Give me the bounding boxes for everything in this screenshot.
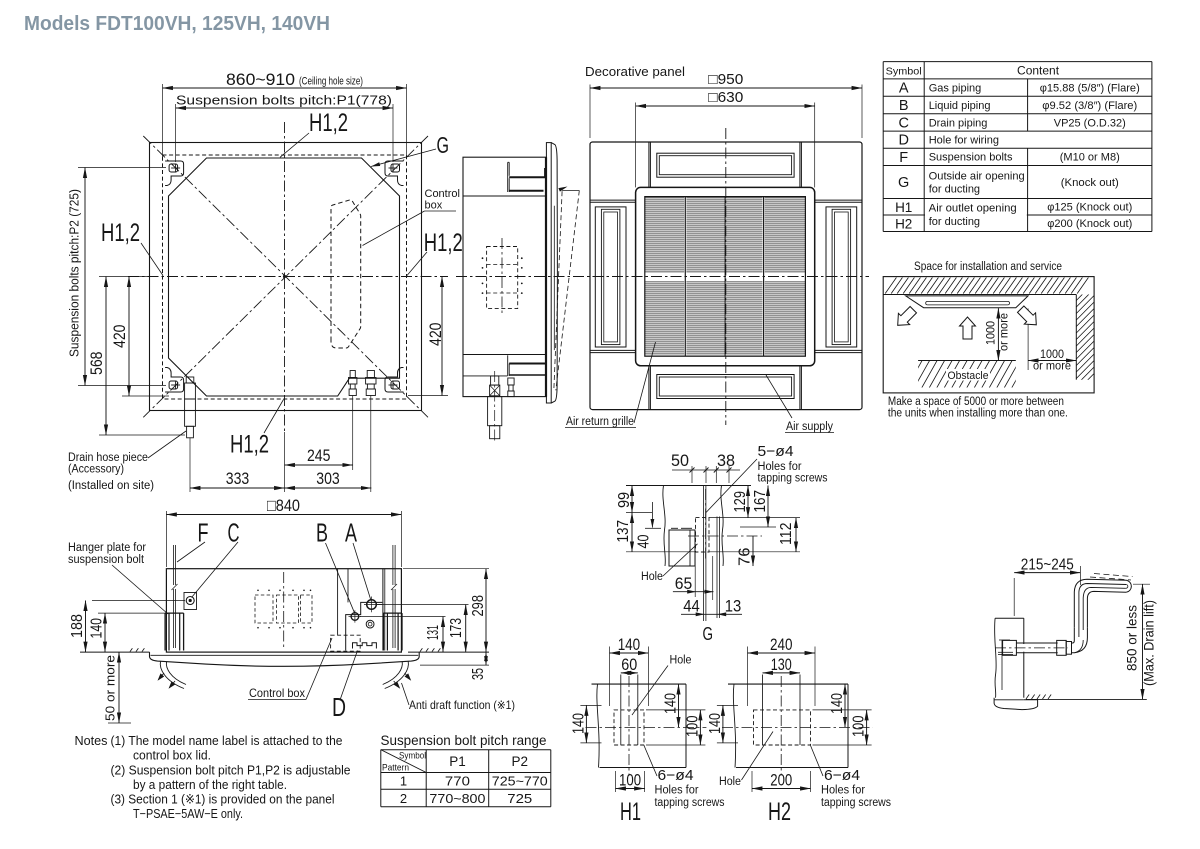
svg-text:Control box: Control box [249,686,305,700]
svg-text:850 or less: 850 or less [1125,605,1140,671]
svg-text:(Ceiling hole size): (Ceiling hole size) [299,76,363,88]
svg-text:φ200 (Knock out): φ200 (Knock out) [1047,218,1132,230]
svg-text:(2) Suspension bolt pitch P1,P: (2) Suspension bolt pitch P1,P2 is adjus… [111,763,351,778]
svg-text:129: 129 [732,491,749,513]
svg-text:(M10 or M8): (M10 or M8) [1060,152,1120,164]
svg-text:G: G [703,624,714,644]
svg-text:140: 140 [89,618,106,639]
svg-text:tapping screws: tapping screws [655,797,725,809]
svg-text:188: 188 [69,614,86,638]
svg-text:99: 99 [616,492,633,508]
svg-text:2: 2 [400,791,407,806]
svg-text:Holes for: Holes for [758,461,802,473]
svg-text:140: 140 [707,713,724,734]
svg-text:Suspension bolts: Suspension bolts [929,152,1013,164]
svg-text:box: box [425,200,443,212]
svg-text:Suspension bolt pitch range: Suspension bolt pitch range [381,733,547,748]
svg-text:65: 65 [675,574,693,593]
svg-text:P2: P2 [511,754,528,769]
svg-text:tapping screws: tapping screws [821,797,891,809]
svg-text:or more: or more [1033,361,1071,373]
svg-text:H1,2: H1,2 [101,219,140,247]
svg-text:568: 568 [87,352,106,376]
svg-text:H1: H1 [620,798,641,826]
svg-text:Control: Control [425,188,460,200]
svg-text:Notes: Notes [75,733,108,748]
svg-text:Holes for: Holes for [821,785,865,797]
svg-text:for ducting: for ducting [929,216,980,228]
svg-text:35: 35 [470,668,487,680]
svg-text:H1: H1 [895,200,912,215]
svg-text:333: 333 [226,469,250,488]
svg-text:□950: □950 [708,71,743,88]
svg-text:Symbol: Symbol [886,65,922,77]
svg-text:φ125 (Knock out): φ125 (Knock out) [1047,202,1132,214]
svg-text:6−ø4: 6−ø4 [658,767,694,784]
svg-text:Hole for wiring: Hole for wiring [929,134,999,146]
svg-text:Hole: Hole [670,655,692,667]
svg-text:200: 200 [770,771,792,790]
svg-text:Suspension bolts pitch:P1(778): Suspension bolts pitch:P1(778) [176,93,392,108]
svg-text:131: 131 [425,625,442,640]
svg-text:B: B [316,518,328,548]
svg-text:H1,2: H1,2 [230,431,269,459]
svg-text:Air outlet opening: Air outlet opening [929,203,1017,215]
svg-text:298: 298 [470,595,487,617]
svg-text:H1,2: H1,2 [424,229,463,257]
svg-text:Obstacle: Obstacle [948,370,989,382]
svg-text:Anti draft function (※1): Anti draft function (※1) [409,698,515,712]
svg-text:76: 76 [737,547,754,566]
svg-text:A: A [345,518,357,548]
svg-text:Space for installation and ser: Space for installation and service [914,261,1062,273]
svg-text:Hole: Hole [719,776,741,788]
svg-text:G: G [898,175,909,191]
svg-text:420: 420 [110,325,129,349]
svg-text:Content: Content [1017,65,1060,77]
svg-text:G: G [437,132,450,158]
svg-text:tapping screws: tapping screws [758,473,828,485]
svg-text:860~910: 860~910 [226,70,295,89]
svg-text:112: 112 [778,522,795,545]
svg-text:P1: P1 [449,754,466,769]
svg-text:VP25 (O.D.32): VP25 (O.D.32) [1054,117,1126,129]
svg-text:T−PSAE−5AW−E only.: T−PSAE−5AW−E only. [133,806,243,821]
svg-text:for ducting: for ducting [929,184,980,196]
svg-text:Symbol: Symbol [399,750,426,760]
svg-text:770~800: 770~800 [429,791,485,806]
svg-text:13: 13 [725,597,742,616]
svg-text:F: F [899,150,908,166]
svg-text:140: 140 [829,693,846,714]
svg-text:Suspension bolts pitch:P2 (725: Suspension bolts pitch:P2 (725) [68,189,82,357]
svg-text:725: 725 [507,791,532,806]
svg-text:38: 38 [717,451,735,470]
svg-text:140: 140 [618,635,641,654]
svg-text:(Installed on site): (Installed on site) [68,480,154,492]
svg-text:167: 167 [752,490,769,513]
svg-text:Air supply: Air supply [786,421,833,433]
svg-text:□630: □630 [708,89,743,106]
svg-text:420: 420 [426,323,445,347]
svg-text:1000: 1000 [1040,349,1064,361]
svg-text:(1) The model name label is at: (1) The model name label is attached to … [111,733,343,748]
svg-text:A: A [899,81,909,97]
svg-text:137: 137 [615,520,632,543]
svg-text:303: 303 [316,469,340,488]
svg-text:Drain piping: Drain piping [929,117,988,129]
svg-text:H2: H2 [768,798,791,826]
svg-text:φ15.88 (5/8″) (Flare): φ15.88 (5/8″) (Flare) [1040,82,1140,94]
svg-text:1: 1 [400,774,407,789]
svg-text:φ9.52 (3/8″) (Flare): φ9.52 (3/8″) (Flare) [1042,100,1137,112]
svg-text:725~770: 725~770 [492,774,548,789]
svg-text:C: C [228,518,240,548]
svg-text:D: D [898,133,908,149]
svg-text:(Knock out): (Knock out) [1061,177,1119,189]
svg-text:770: 770 [445,774,470,789]
svg-text:Pattern: Pattern [382,763,409,773]
svg-text:Gas piping: Gas piping [929,82,982,94]
svg-text:100: 100 [619,771,641,790]
svg-text:Decorative panel: Decorative panel [585,65,685,79]
svg-text:Hanger plate for: Hanger plate for [68,542,146,554]
svg-text:1000: 1000 [986,321,998,345]
svg-text:Holes for: Holes for [655,785,699,797]
svg-text:50 or more: 50 or more [104,655,118,721]
svg-text:5−ø4: 5−ø4 [758,443,794,460]
svg-text:H1,2: H1,2 [309,109,348,137]
svg-text:(Accessory): (Accessory) [68,464,124,476]
svg-text:50: 50 [671,451,689,470]
svg-text:60: 60 [621,655,637,674]
svg-text:Liquid piping: Liquid piping [929,100,991,112]
svg-text:Air return grille: Air return grille [566,416,634,428]
svg-text:D: D [332,692,346,722]
svg-text:140: 140 [570,713,587,734]
svg-text:C: C [898,115,908,131]
svg-text:100: 100 [851,715,868,737]
svg-text:or more: or more [999,313,1011,351]
svg-text:by a pattern of the right tabl: by a pattern of the right table. [133,777,287,792]
svg-text:215~245: 215~245 [1021,557,1074,574]
svg-text:140: 140 [663,693,680,714]
svg-text:6−ø4: 6−ø4 [824,767,860,784]
svg-text:the units when installing more: the units when installing more than one. [888,408,1068,420]
svg-text:Hole: Hole [641,571,663,583]
svg-text:130: 130 [771,655,792,674]
svg-text:Models FDT100VH, 125VH, 140VH: Models FDT100VH, 125VH, 140VH [24,13,330,35]
svg-text:44: 44 [683,597,700,616]
svg-text:(Max. Drain lift): (Max. Drain lift) [1142,600,1157,686]
svg-text:100: 100 [684,715,701,737]
svg-text:240: 240 [770,635,793,654]
svg-text:Outside air opening: Outside air opening [929,171,1025,183]
svg-text:245: 245 [307,446,331,465]
svg-text:Make a space of 5000 or more b: Make a space of 5000 or more between [888,396,1064,408]
svg-text:(3) Section 1 (※1) is provided: (3) Section 1 (※1) is provided on the pa… [111,792,335,807]
svg-text:□840: □840 [267,496,300,515]
svg-text:control box lid.: control box lid. [133,748,211,763]
svg-text:173: 173 [448,618,465,638]
svg-text:suspension bolt: suspension bolt [68,554,145,566]
svg-text:H2: H2 [895,216,912,231]
svg-text:Drain hose piece: Drain hose piece [68,452,148,464]
svg-text:B: B [899,98,909,114]
svg-text:40: 40 [636,534,653,548]
